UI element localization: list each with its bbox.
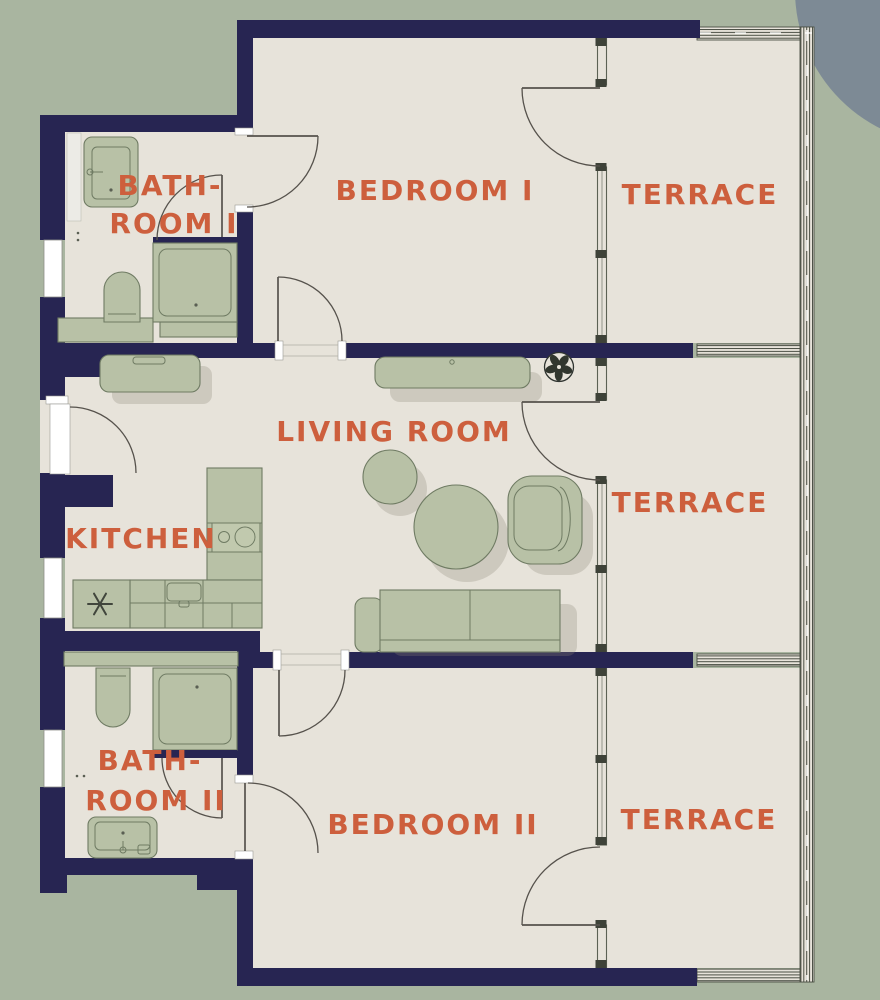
window [44, 558, 62, 618]
toilet-bowl [96, 668, 130, 727]
kitchen-counter [130, 580, 262, 628]
wall-segment [40, 473, 65, 558]
shower-icon [153, 237, 237, 322]
wall-mark [77, 232, 80, 235]
wall-segment [40, 875, 67, 893]
railing-top [697, 27, 812, 40]
stove-icon [212, 523, 260, 552]
wall-segment [40, 115, 243, 132]
door-opening-floor [277, 652, 345, 668]
mullion [596, 393, 607, 401]
wall-segment [197, 875, 253, 890]
bathroom-2-shelf [64, 652, 238, 666]
room-label-bathroom-2-line-1: BATH- [98, 744, 203, 777]
room-label-kitchen: KITCHEN [65, 522, 217, 555]
room-label-living-room: LIVING ROOM [276, 415, 512, 448]
wall-segment [40, 631, 260, 651]
door-jamb [235, 851, 253, 859]
sink-drain [109, 188, 112, 191]
mullion [596, 163, 607, 171]
entry-sideboard-icon [100, 355, 212, 404]
room-label-terrace-middle: TERRACE [612, 486, 769, 519]
shower-tray [153, 243, 237, 322]
room-label-bathroom-1-line-2: ROOM I [109, 207, 238, 240]
wall-segment [237, 652, 277, 668]
sofa-icon [355, 590, 577, 656]
mullion [596, 644, 607, 652]
coffee-table-top [414, 485, 498, 569]
room-label-terrace-bottom: TERRACE [621, 803, 778, 836]
door-jamb [235, 128, 253, 135]
wall-mark [83, 775, 86, 778]
wall-segment [341, 343, 693, 358]
mullion [596, 668, 607, 676]
railing-divider-2 [697, 654, 812, 666]
door-jamb [341, 650, 349, 670]
side-table-top [363, 450, 417, 504]
window [44, 240, 62, 297]
railing-divider-1 [697, 344, 812, 356]
sofa-armrest [355, 598, 383, 652]
glass-walls [596, 38, 608, 968]
door-jamb [275, 341, 283, 360]
shower-drain [194, 303, 197, 306]
floor-plan-canvas: BATH- ROOM I BEDROOM I TERRACE LIVING RO… [0, 0, 880, 1000]
wall-segment [40, 858, 253, 875]
shower-tray [153, 668, 237, 750]
toilet-icon [96, 668, 130, 727]
plant-icon [544, 353, 573, 382]
floor-plan: BATH- ROOM I BEDROOM I TERRACE LIVING RO… [0, 0, 880, 1000]
mullion [596, 250, 607, 258]
cooktop-panel [212, 523, 260, 552]
sink-icon [88, 817, 157, 858]
toilet-icon [104, 272, 140, 322]
door-jamb [338, 341, 346, 360]
bathroom-1-shelf [160, 322, 237, 337]
entry-door-leaf [50, 404, 70, 474]
fridge-icon [73, 580, 130, 628]
window [44, 730, 62, 787]
wall-mark [77, 239, 80, 242]
sideboard-body [100, 355, 200, 392]
room-label-bathroom-1-line-1: BATH- [118, 169, 223, 202]
wall-segment [237, 20, 700, 38]
door-jamb [46, 396, 68, 404]
tv-sideboard-icon [375, 357, 542, 402]
mullion [596, 755, 607, 763]
railing-bottom [697, 969, 812, 982]
wall-segment [237, 212, 253, 358]
mullion [596, 960, 607, 968]
mullion [596, 38, 607, 46]
mullion [596, 565, 607, 573]
shower-drain [195, 685, 198, 688]
door-jamb [235, 775, 253, 783]
bathroom-1-wall-panel [67, 133, 81, 221]
wall-segment [237, 968, 697, 986]
mullion [596, 837, 607, 845]
mullion [596, 79, 607, 87]
mullion [596, 335, 607, 343]
room-label-bathroom-2-line-2: ROOM II [85, 784, 227, 817]
wall-mark [76, 775, 79, 778]
room-label-bedroom-2: BEDROOM II [327, 808, 538, 841]
wall-segment [40, 115, 65, 240]
room-label-bedroom-1: BEDROOM I [336, 174, 535, 207]
counter-run [130, 580, 262, 628]
room-label-terrace-top: TERRACE [622, 178, 779, 211]
sink-body [88, 817, 157, 858]
wall-segment [65, 475, 113, 507]
armchair-icon [508, 476, 593, 575]
mullion [596, 358, 607, 366]
sink-drain [121, 831, 124, 834]
tv-sideboard-body [375, 357, 530, 388]
wall-segment [237, 668, 253, 780]
plant-center [557, 365, 561, 369]
mullion [596, 920, 607, 928]
door-opening-floor [237, 133, 253, 207]
door-jamb [273, 650, 281, 670]
